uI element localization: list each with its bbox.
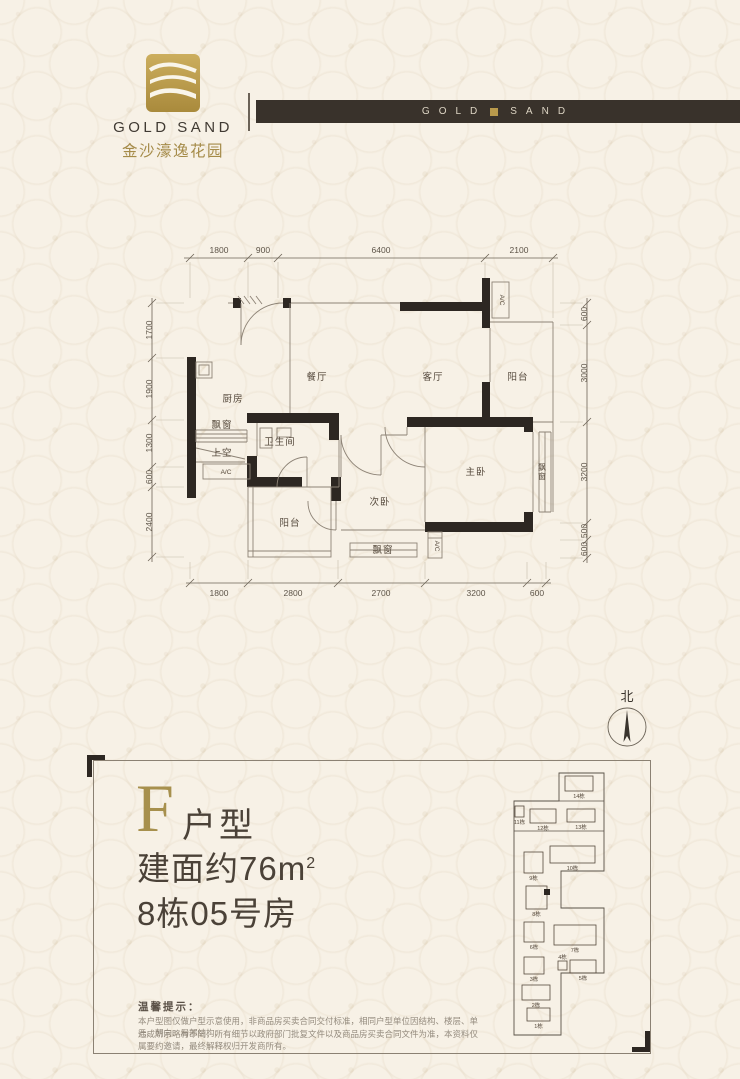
room-label-balcony-top: 阳台 <box>507 371 528 383</box>
north-label: 北 <box>620 689 633 704</box>
room-label-bed2: 次卧 <box>369 496 390 508</box>
site-plan: 14栋11栋12栋13栋9栋10栋8栋6栋7栋3栋4栋5栋2栋1栋 <box>482 768 642 1058</box>
area-prefix: 建面约 <box>137 850 239 887</box>
site-building <box>524 922 544 942</box>
current-building-marker <box>544 889 550 895</box>
building-label: 6栋 <box>530 943 539 951</box>
unit-type-label: 户型 <box>182 798 256 847</box>
dim-label: 1800 <box>210 588 229 598</box>
dim-label: 600 <box>579 542 589 556</box>
banner-text-sand: SAND <box>510 106 574 117</box>
site-building <box>558 961 567 970</box>
building-label: 9栋 <box>529 874 538 882</box>
building-label: 3栋 <box>530 975 539 983</box>
building-label: 12栋 <box>537 824 549 832</box>
building-label: 13栋 <box>575 823 587 831</box>
poster-page: { "header": { "logo": { "name_en": "GOLD… <box>0 0 740 1079</box>
dim-label: 1300 <box>144 433 154 452</box>
room-label-bath: 卫生间 <box>264 436 296 448</box>
area-sup: 2 <box>306 855 316 872</box>
logo-name-en: GOLD SAND <box>110 119 236 136</box>
dim-label: 500 <box>579 524 589 538</box>
compass-needle-icon <box>624 710 631 742</box>
site-buildings: 14栋11栋12栋13栋9栋10栋8栋6栋7栋3栋4栋5栋2栋1栋 <box>514 776 596 1030</box>
site-building <box>515 806 524 817</box>
dim-label: 2400 <box>144 512 154 531</box>
dim-label: 3200 <box>467 588 486 598</box>
building-label: 4栋 <box>558 953 567 961</box>
dim-label: 3000 <box>579 363 589 382</box>
logo-wave-icon <box>146 54 200 112</box>
unit-room-line: 8栋05号房 <box>137 887 297 935</box>
room-label-living: 客厅 <box>422 371 443 383</box>
dim-label: 3200 <box>579 462 589 481</box>
site-building <box>524 852 543 873</box>
corner-mark-bottom-right <box>645 1031 650 1052</box>
site-building <box>570 960 596 973</box>
site-boundary-inner <box>514 801 604 831</box>
site-building <box>554 925 596 945</box>
dim-label: 600 <box>144 470 154 484</box>
site-building <box>527 1008 550 1021</box>
site-boundary <box>514 773 604 1035</box>
ac-label-bottom: A/C <box>433 541 440 552</box>
dim-label: 2100 <box>510 245 529 255</box>
site-building <box>526 886 547 909</box>
room-label-balcony-bottom: 阳台 <box>279 517 300 529</box>
tips-text: 造成所示略有不同，所有细节以政府部门批复文件以及商品房买卖合同文件为准，本资料仅… <box>138 1028 483 1052</box>
area-unit: m <box>278 850 307 887</box>
tips-title: 温馨提示： <box>138 999 201 1014</box>
area-value: 76 <box>239 850 278 887</box>
site-building <box>530 809 556 823</box>
corner-mark-top-left <box>87 755 92 777</box>
dim-label: 600 <box>530 588 544 598</box>
logo-name-cn: 金沙濠逸花园 <box>110 139 236 161</box>
unit-area-line: 建面约76m2 <box>137 842 316 890</box>
site-building <box>565 776 593 791</box>
site-building <box>524 957 544 974</box>
unit-letter: F <box>136 774 174 842</box>
room-label-master: 主卧 <box>465 466 486 478</box>
building-label: 5栋 <box>579 974 588 982</box>
dim-label: 2700 <box>372 588 391 598</box>
banner-gold-square-icon <box>490 108 498 116</box>
ac-label-left: A/C <box>221 469 232 476</box>
dim-label: 1800 <box>210 245 229 255</box>
site-building <box>550 846 595 863</box>
room-label-kitchen: 厨房 <box>222 393 243 405</box>
floor-plan: 1800 900 6400 2100 1800 2800 2700 3200 6… <box>140 240 610 608</box>
walls <box>187 278 533 532</box>
site-building <box>522 985 550 1000</box>
building-label: 10栋 <box>567 864 579 872</box>
brand-logo: GOLD SAND 金沙濠逸花园 <box>110 54 236 161</box>
building-label: 14栋 <box>573 792 585 800</box>
dim-label: 900 <box>256 245 270 255</box>
brand-banner: GOLD SAND <box>256 100 740 123</box>
dim-label: 6400 <box>372 245 391 255</box>
north-indicator: 北 <box>600 685 655 755</box>
dim-label: 1700 <box>144 320 154 339</box>
building-label: 11栋 <box>514 818 526 826</box>
dim-label: 1900 <box>144 379 154 398</box>
dim-label: 600 <box>579 307 589 321</box>
room-label-bay-left: 飘窗 <box>211 419 232 431</box>
room-label-bay-bottom: 飘窗 <box>372 544 393 556</box>
header-divider <box>248 93 250 131</box>
banner-text-gold: GOLD <box>422 106 486 117</box>
dim-label: 2800 <box>284 588 303 598</box>
building-label: 1栋 <box>534 1022 543 1030</box>
room-label-void: 上空 <box>211 447 232 459</box>
room-label-dining: 餐厅 <box>306 371 327 383</box>
building-label: 8栋 <box>532 910 541 918</box>
room-label-bay-right: 飘窗 <box>538 463 547 481</box>
ac-label-top: A/C <box>498 295 505 306</box>
building-label: 7栋 <box>571 946 580 954</box>
site-building <box>567 809 595 822</box>
